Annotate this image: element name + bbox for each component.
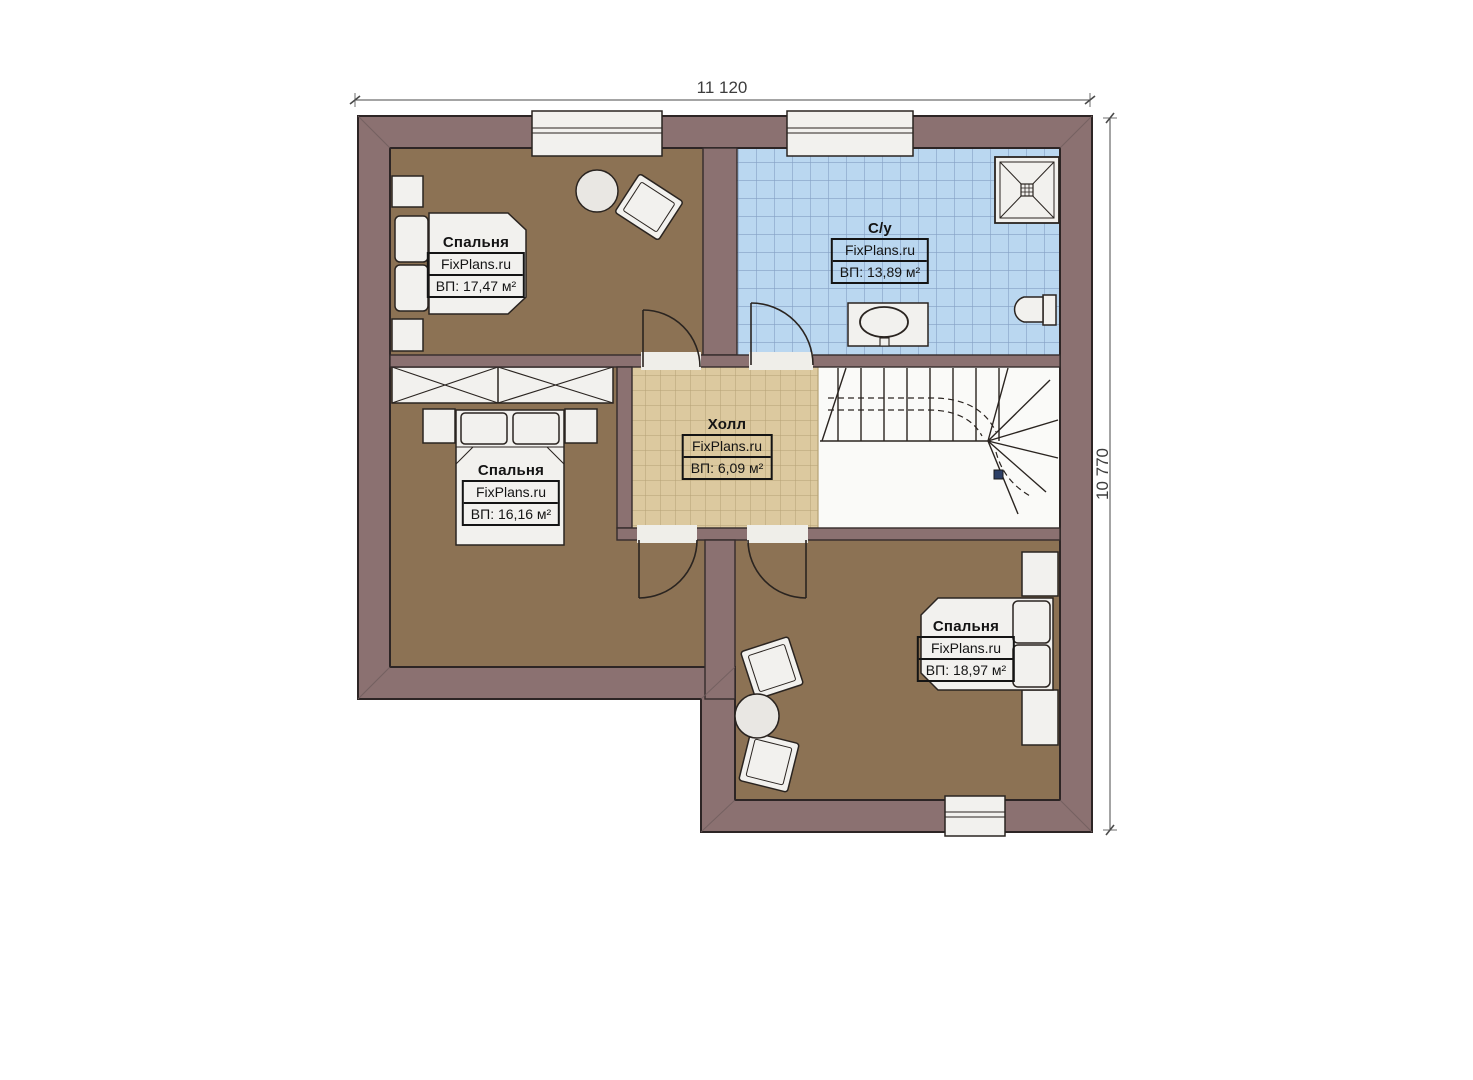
window-bathroom-icon: [787, 111, 913, 156]
nightstand-icon: [1022, 552, 1058, 596]
nightstand-icon: [423, 409, 455, 443]
pillow-icon: [395, 216, 428, 262]
floor-plan-drawing: [0, 0, 1473, 1080]
pillow-icon: [461, 413, 507, 444]
nightstand-icon: [392, 319, 423, 351]
brand-watermark: FixPlans.ru: [464, 482, 558, 502]
pillow-icon: [1013, 601, 1050, 643]
nightstand-icon: [392, 176, 423, 207]
room-label-bathroom: С/у FixPlans.ru ВП: 13,89 м²: [831, 220, 929, 284]
nightstand-icon: [565, 409, 597, 443]
wardrobe-icon: [392, 367, 613, 403]
brand-watermark: FixPlans.ru: [429, 254, 523, 274]
nightstand-icon: [1022, 690, 1058, 745]
room-name: С/у: [831, 220, 929, 238]
dimension-height-label: 10 770: [1093, 448, 1113, 500]
shower-icon: [995, 157, 1059, 223]
brand-watermark: FixPlans.ru: [833, 240, 927, 260]
room-name: Спальня: [917, 618, 1015, 636]
dimension-width-label: 11 120: [697, 78, 748, 98]
brand-watermark: FixPlans.ru: [684, 436, 771, 456]
pillow-icon: [513, 413, 559, 444]
sink-icon: [848, 303, 928, 346]
brand-watermark: FixPlans.ru: [919, 638, 1013, 658]
wall-horizontal-mid: [390, 355, 1060, 367]
room-name: Холл: [682, 416, 773, 434]
room-area: ВП: 18,97 м²: [919, 658, 1013, 680]
floor-plan-page: 11 120 10 770 Спальня FixPlans.ru ВП: 17…: [0, 0, 1473, 1080]
room-label-bedroom-3: Спальня FixPlans.ru ВП: 18,97 м²: [917, 618, 1015, 682]
pillow-icon: [395, 265, 428, 311]
wall-bedroom1-bathroom: [703, 148, 737, 355]
table-icon: [735, 694, 779, 738]
window-bedroom3-icon: [945, 796, 1005, 836]
room-label-bedroom-1: Спальня FixPlans.ru ВП: 17,47 м²: [427, 234, 525, 298]
room-name: Спальня: [427, 234, 525, 252]
room-area: ВП: 6,09 м²: [684, 456, 771, 478]
room-area: ВП: 13,89 м²: [833, 260, 927, 282]
room-label-hall: Холл FixPlans.ru ВП: 6,09 м²: [682, 416, 773, 480]
window-bedroom1-icon: [532, 111, 662, 156]
room-name: Спальня: [462, 462, 560, 480]
stair-newel-post: [994, 470, 1003, 479]
wall-bedroom3-left: [705, 540, 735, 699]
room-label-bedroom-2: Спальня FixPlans.ru ВП: 16,16 м²: [462, 462, 560, 526]
room-area: ВП: 17,47 м²: [429, 274, 523, 296]
room-area: ВП: 16,16 м²: [464, 502, 558, 524]
stair-landing-floor: [818, 367, 1060, 528]
chair-icon: [739, 732, 800, 793]
pillow-icon: [1013, 645, 1050, 687]
wall-hall-left: [617, 367, 632, 528]
toilet-icon: [1015, 295, 1056, 325]
table-icon: [576, 170, 618, 212]
